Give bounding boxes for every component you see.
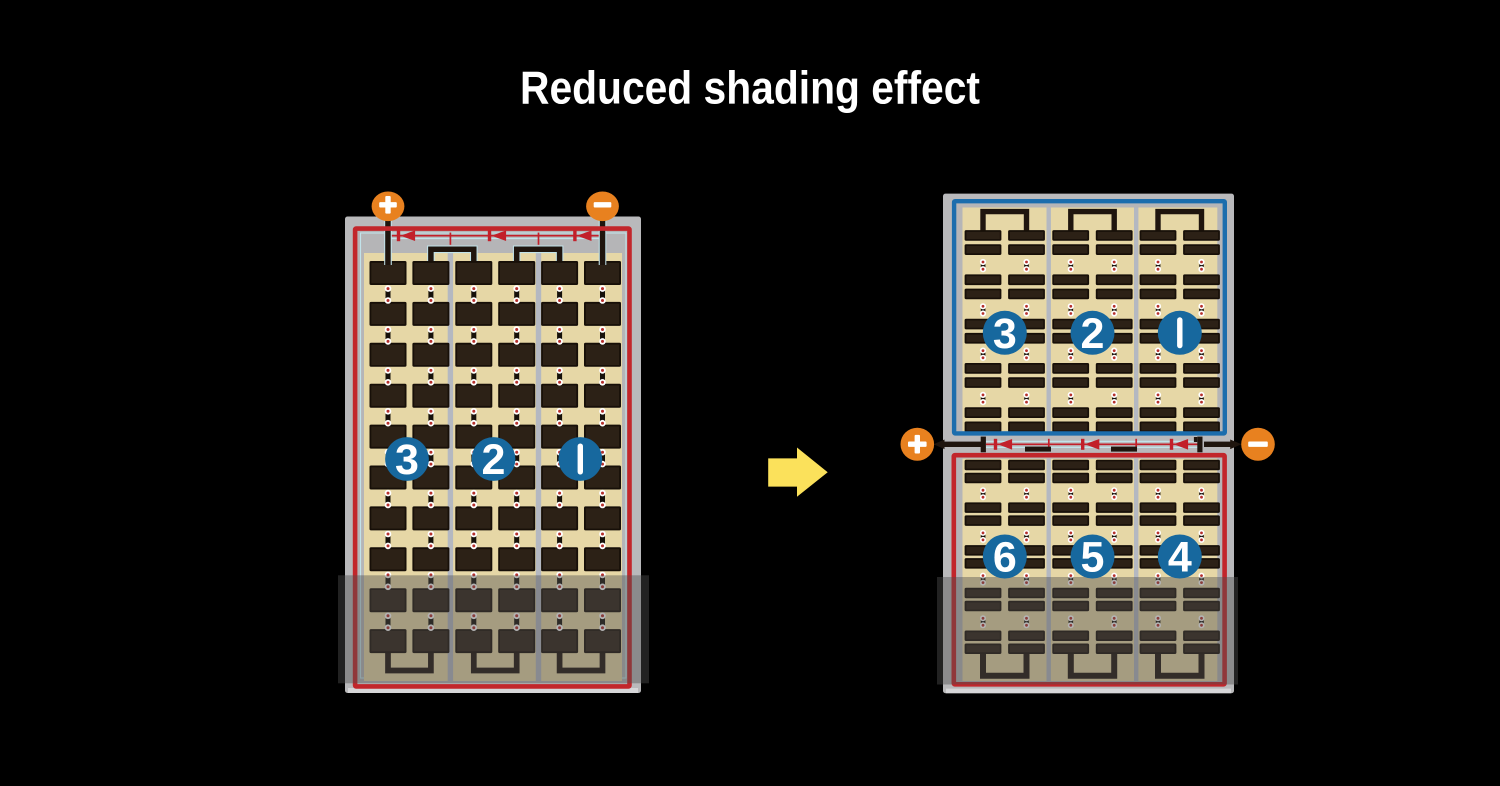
svg-text:2: 2 bbox=[482, 436, 506, 484]
svg-text:6: 6 bbox=[993, 534, 1017, 582]
svg-text:3: 3 bbox=[993, 310, 1017, 358]
svg-text:2: 2 bbox=[1081, 310, 1105, 358]
svg-text:5: 5 bbox=[1081, 534, 1105, 582]
svg-text:3: 3 bbox=[395, 436, 419, 484]
svg-text:Reduced shading effect: Reduced shading effect bbox=[520, 62, 980, 114]
svg-text:4: 4 bbox=[1168, 534, 1192, 582]
